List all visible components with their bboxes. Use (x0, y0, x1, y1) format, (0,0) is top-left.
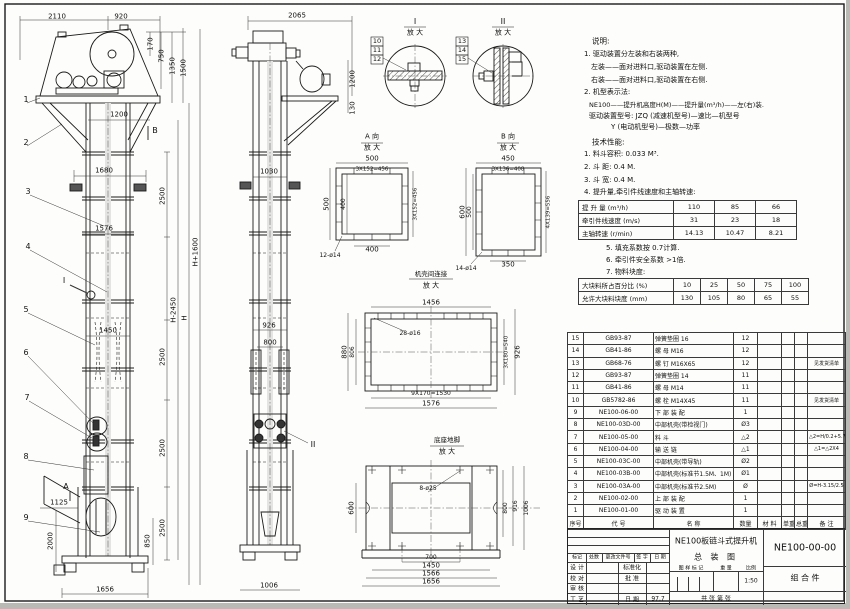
bom-cell: NE100-01-00 (584, 505, 654, 517)
drawing-sheet: { "notes": { "heading": "说明:", "lines": … (0, 0, 850, 609)
bom-cell: NE100-04-00 (584, 443, 654, 455)
tb-label-date2: 日 期 (625, 595, 639, 604)
note-line: 左装——面对进料口,驱动装置在左侧. (591, 62, 707, 72)
dim-label: 800 (263, 340, 276, 347)
capacity-cell: 23 (715, 214, 756, 227)
dim-label: 9X170=1530 (411, 391, 451, 397)
dim-label: 2500 (160, 519, 167, 537)
note-line: 驱动装置型号: JZQ (减速机型号)—速比—机型号 (589, 111, 740, 121)
bom-cell (782, 394, 795, 406)
dim-label: 3X180=540 (504, 336, 510, 369)
capacity-cell: 85 (715, 201, 756, 214)
bom-cell: △2=H/0.2+5.75 (808, 431, 846, 443)
tb-label-review: 审 核 (570, 584, 584, 593)
bom-cell (782, 455, 795, 467)
tb-kind: 组 合 件 (790, 573, 819, 584)
tb-product-name: NE100板链斗式提升机 (675, 536, 757, 547)
bom-cell: GB41-86 (584, 382, 654, 394)
bom-cell (782, 480, 795, 492)
bom-row: 5NE100-03C-00中部机壳(带导轨)Ø2 (568, 455, 846, 467)
bom-cell (782, 357, 795, 369)
lump-cell: 大块料所占百分比 (%) (579, 279, 674, 292)
bom-cell (758, 369, 782, 381)
bom-cell: 6 (568, 443, 584, 455)
dim-label: II (501, 18, 506, 26)
bom-cell: 螺 母 M14 (654, 382, 734, 394)
tb-label-scale: 比例 (746, 565, 756, 572)
bom-cell (758, 333, 782, 345)
tech-line: 1. 料斗容积: 0.033 M³. (584, 149, 659, 159)
capacity-cell: 提 升 量 (m³/h) (579, 201, 674, 214)
dim-label: 8-ø25 (419, 486, 436, 492)
dim-label: 10 (373, 38, 381, 45)
bom-cell: 弹簧垫圈 16 (654, 333, 734, 345)
lump-cell: 65 (755, 292, 782, 305)
lump-cell: 105 (701, 292, 728, 305)
bom-cell: Ø3 (734, 419, 758, 431)
capacity-cell: 主轴转速 (r/min) (579, 227, 674, 240)
bom-cell (795, 468, 808, 480)
bom-cell: △2 (734, 431, 758, 443)
dim-label: 1450 (422, 563, 440, 570)
bom-cell (758, 480, 782, 492)
tb-label-count: 处数 (589, 554, 599, 561)
capacity-cell: 31 (674, 214, 715, 227)
capacity-cell: 14.13 (674, 227, 715, 240)
bom-cell: NE100-03C-00 (584, 455, 654, 467)
dim-label: 底座地脚 (434, 437, 460, 444)
dim-label: 3X152=456 (413, 188, 419, 221)
bom-cell: NE100-05-00 (584, 431, 654, 443)
tb-scale-value: 1:50 (744, 578, 757, 585)
dim-label: 2065 (288, 13, 306, 20)
bom-cell (758, 505, 782, 517)
bom-cell: NE100-03B-00 (584, 468, 654, 480)
tb-label-std: 标准化 (623, 563, 641, 572)
note-line: 右装——面对进料口,驱动装置在右侧. (591, 75, 707, 85)
dim-label: 2500 (160, 187, 167, 205)
dim-label: 920 (114, 14, 127, 21)
bom-cell: △1=△2X4 (808, 443, 846, 455)
dim-label: 750 (159, 49, 166, 62)
dim-label: 3X152=456 (356, 167, 389, 173)
bom-cell: 14 (568, 345, 584, 357)
dim-label: 1656 (422, 579, 440, 586)
detail-view-I (371, 27, 447, 108)
dim-label: 926 (262, 323, 275, 330)
dim-label: 400 (341, 198, 347, 209)
bom-cell: NE100-06-00 (584, 406, 654, 418)
bom-cell (782, 419, 795, 431)
bom-cell: 输 送 链 (654, 443, 734, 455)
bom-cell: 13 (568, 357, 584, 369)
dim-label: 700 (425, 555, 436, 561)
tb-date-value: 97.7 (651, 596, 664, 603)
bom-cell (808, 455, 846, 467)
tb-sheets: 共 张 第 张 (701, 594, 731, 603)
lump-size-table: 大块料所占百分比 (%)10255075100允许大块料块度 (mm)13010… (578, 278, 809, 305)
bom-cell (808, 345, 846, 357)
dim-label: 11 (373, 47, 381, 54)
bom-row: 3NE100-03A-00中部机壳(标准节2.5M)ØØ=H-3.15/2.5 (568, 480, 846, 492)
dim-label: I (414, 18, 416, 26)
tb-label-doc: 更改文件号 (605, 554, 630, 561)
bom-parts-table: 15GB93-87弹簧垫圈 161214GB41-86螺 母 M161213GB… (567, 332, 846, 530)
dim-label: 放 大 (407, 30, 423, 37)
bom-cell (758, 419, 782, 431)
bom-cell (782, 431, 795, 443)
lump-cell: 75 (755, 279, 782, 292)
bom-row: 6NE100-04-00输 送 链△1△1=△2X4 (568, 443, 846, 455)
dim-label: H-2450 (171, 297, 178, 323)
capacity-row: 提 升 量 (m³/h)1108566 (579, 201, 797, 214)
tb-label-approve: 批 准 (625, 574, 639, 583)
bom-cell: NE100-02-00 (584, 492, 654, 504)
lump-cell: 25 (701, 279, 728, 292)
bom-cell (782, 406, 795, 418)
dim-label: 12 (373, 56, 381, 63)
note-line: 1. 驱动装置分左装和右装两种, (584, 49, 679, 59)
casing-joint-view (358, 279, 504, 398)
bom-cell (758, 394, 782, 406)
dim-label: 500 (365, 156, 378, 163)
capacity-cell: 10.47 (715, 227, 756, 240)
dim-label: 3 (25, 188, 30, 196)
bom-cell: 料 斗 (654, 431, 734, 443)
bom-cell (795, 369, 808, 381)
capacity-cell: 8.21 (756, 227, 797, 240)
bom-cell (808, 492, 846, 504)
tb-label-craft: 工 艺 (570, 595, 584, 604)
dim-label: 806 (350, 346, 356, 357)
dim-label: II (311, 441, 316, 449)
bom-cell: 11 (734, 394, 758, 406)
bom-cell (795, 480, 808, 492)
tech-line: 4. 提升量,牵引件线速度和主轴转速: (584, 187, 696, 197)
bom-cell (795, 345, 808, 357)
bom-cell: 下 部 装 配 (654, 406, 734, 418)
dim-label: 1456 (422, 300, 440, 307)
dim-label: 机壳间连接 (415, 271, 448, 278)
bom-row: 14GB41-86螺 母 M1612 (568, 345, 846, 357)
dim-label: 放 大 (423, 283, 439, 290)
dim-label: 2110 (48, 14, 66, 21)
bom-cell (795, 443, 808, 455)
dim-label: 1576 (95, 226, 113, 233)
bom-cell: NE100-03A-00 (584, 480, 654, 492)
capacity-cell: 66 (756, 201, 797, 214)
lump-cell: 80 (728, 292, 755, 305)
tech-note: 7. 物料块度: (606, 267, 645, 277)
side-elevation-view (232, 31, 338, 560)
bom-cell: GB93-87 (584, 369, 654, 381)
dim-label: 400 (365, 247, 378, 254)
bom-cell: Ø (734, 480, 758, 492)
detail-view-II (456, 27, 533, 108)
dim-label: A (63, 483, 68, 491)
dim-label: 450 (501, 156, 514, 163)
bom-cell (808, 419, 846, 431)
bom-cell (795, 419, 808, 431)
note-line: NE100——提升机高度H(M)——提升量(m³/h)——左(右)装. (589, 99, 764, 109)
bom-cell (782, 345, 795, 357)
bom-cell: 3 (568, 480, 584, 492)
tb-label-check: 校 对 (570, 574, 584, 583)
bom-cell (808, 333, 846, 345)
dim-label: 放 大 (495, 30, 511, 37)
bom-cell (795, 431, 808, 443)
bom-row: 1NE100-01-00驱 动 装 置1 (568, 505, 846, 517)
bom-cell: 4 (568, 468, 584, 480)
tb-label-mark: 标记 (572, 554, 582, 561)
dim-label: 170 (148, 37, 155, 50)
dim-label: 1030 (260, 169, 278, 176)
bom-cell (808, 468, 846, 480)
dim-label: 8 (23, 453, 28, 461)
bom-cell: 螺 栓 M14X45 (654, 394, 734, 406)
bom-cell: 8 (568, 419, 584, 431)
bom-cell (808, 406, 846, 418)
bom-row: 10GB5782-86螺 栓 M14X4511见发货清单 (568, 394, 846, 406)
bom-cell: 中部机壳(标准节1.5M、1M) (654, 468, 734, 480)
dim-label: 130 (350, 101, 357, 114)
dim-label: 放 大 (439, 449, 455, 456)
lump-cell: 10 (674, 279, 701, 292)
bom-cell: 11 (734, 382, 758, 394)
bom-cell: 中部机壳(带检视门) (654, 419, 734, 431)
dim-label: A 向 (365, 134, 379, 141)
tech-note: 6. 牵引件安全系数 >1倍. (606, 255, 686, 265)
bom-row: 13GB68-76螺 钉 M16X6512见发货清单 (568, 357, 846, 369)
dim-label: 926 (515, 345, 522, 358)
bom-row: 7NE100-05-00料 斗△2△2=H/0.2+5.75 (568, 431, 846, 443)
bom-cell: △1 (734, 443, 758, 455)
dim-label: B (152, 127, 158, 135)
bom-cell: 中部机壳(带导轨) (654, 455, 734, 467)
dim-label: 2500 (160, 348, 167, 366)
bom-cell (795, 406, 808, 418)
bom-cell (808, 505, 846, 517)
bom-cell: 9 (568, 406, 584, 418)
bom-row: 2NE100-02-00上 部 装 配1 (568, 492, 846, 504)
bom-cell: GB93-87 (584, 333, 654, 345)
bom-cell: 螺 钉 M16X65 (654, 357, 734, 369)
tb-label-stamp: 图 样 标 记 (679, 565, 704, 572)
bom-cell: 12 (734, 333, 758, 345)
bom-cell: 2 (568, 492, 584, 504)
dim-label: 1656 (96, 587, 114, 594)
bom-cell: 5 (568, 455, 584, 467)
bom-cell: Ø2 (734, 455, 758, 467)
bom-cell: 见发货清单 (808, 394, 846, 406)
bom-cell (795, 492, 808, 504)
bom-cell (782, 333, 795, 345)
bom-cell (795, 382, 808, 394)
tb-label-date: 日 期 (654, 554, 666, 561)
bom-cell: 中部机壳(标准节2.5M) (654, 480, 734, 492)
bom-cell: 15 (568, 333, 584, 345)
lump-cell: 100 (782, 279, 809, 292)
dim-label: 28-ø16 (399, 331, 420, 337)
bom-cell: 1 (734, 406, 758, 418)
dim-label: 2000 (48, 532, 55, 550)
note-line: Y (电动机型号)—极数—功率 (611, 122, 700, 132)
dim-label: I (63, 277, 65, 285)
bom-cell (808, 382, 846, 394)
bom-cell: GB5782-86 (584, 394, 654, 406)
lump-cell: 130 (674, 292, 701, 305)
base-anchor-view (346, 446, 540, 562)
dim-label: H (182, 315, 189, 320)
dim-label: 1200 (350, 70, 357, 88)
dim-label: 1006 (260, 583, 278, 590)
dim-label: 4X139=556 (546, 196, 552, 229)
bom-cell (758, 492, 782, 504)
capacity-cell: 牵引件线速度 (m/s) (579, 214, 674, 227)
capacity-cell: 18 (756, 214, 797, 227)
dim-label: 放 大 (364, 145, 380, 152)
bom-cell (758, 455, 782, 467)
bom-row: 11GB41-86螺 母 M1411 (568, 382, 846, 394)
dim-label: 7 (24, 394, 29, 402)
bom-row: 4NE100-03B-00中部机壳(标准节1.5M、1M)Ø1 (568, 468, 846, 480)
dim-label: 1200 (110, 112, 128, 119)
bom-cell: 1 (568, 505, 584, 517)
dim-label: 13 (458, 38, 466, 45)
dim-label: 1500 (181, 59, 188, 77)
capacity-row: 牵引件线速度 (m/s)312318 (579, 214, 797, 227)
dim-label: 1 (23, 96, 28, 104)
lump-cell: 55 (782, 292, 809, 305)
bom-cell: GB41-86 (584, 345, 654, 357)
dim-label: 3X136=408 (492, 167, 525, 173)
dim-label: 12-ø14 (319, 253, 340, 259)
dim-label: 1680 (95, 168, 113, 175)
bom-cell (782, 382, 795, 394)
tb-label-weight: 重 量 (720, 565, 732, 572)
dim-label: 350 (501, 262, 514, 269)
note-line: 2. 机型表示法: (584, 87, 630, 97)
capacity-row: 主轴转速 (r/min)14.1310.478.21 (579, 227, 797, 240)
bom-cell: 12 (568, 369, 584, 381)
dim-label: 14 (458, 47, 466, 54)
dim-label: 9 (23, 514, 28, 522)
bom-cell (758, 406, 782, 418)
tb-sheet-name: 总 装 图 (694, 552, 738, 563)
bom-cell (758, 468, 782, 480)
notes-heading: 说明: (592, 36, 610, 47)
tech-note: 5. 填充系数按 0.7计算. (606, 243, 680, 253)
bom-cell (782, 492, 795, 504)
bom-cell (795, 357, 808, 369)
dim-label: 916 (513, 500, 519, 511)
lump-row: 大块料所占百分比 (%)10255075100 (579, 279, 809, 292)
bom-cell: GB68-76 (584, 357, 654, 369)
bom-cell (782, 369, 795, 381)
bom-cell (808, 369, 846, 381)
bom-cell: 螺 母 M16 (654, 345, 734, 357)
bom-cell (758, 431, 782, 443)
bom-cell: 1 (734, 492, 758, 504)
dim-label: 15 (458, 56, 466, 63)
dim-label: 880 (342, 345, 349, 358)
title-block: 标记 处数 更改文件号 签 字 日 期 设 计 校 对 审 核 工 艺 标准化 … (567, 528, 845, 604)
dim-label: 1450 (99, 328, 117, 335)
dim-label: 800 (503, 502, 509, 513)
dim-label: 500 (324, 197, 331, 210)
dim-label: 1350 (170, 57, 177, 75)
dim-label: 850 (145, 534, 152, 547)
bom-cell (782, 505, 795, 517)
dim-label: B 向 (501, 134, 515, 141)
bom-cell (795, 394, 808, 406)
dim-label: 1566 (422, 571, 440, 578)
bom-cell (758, 443, 782, 455)
lump-cell: 允许大块料块度 (mm) (579, 292, 674, 305)
dim-label: H+1600 (193, 238, 200, 267)
tb-drawing-code: NE100-00-00 (774, 543, 836, 554)
bom-row: 9NE100-06-00下 部 装 配1 (568, 406, 846, 418)
tb-label-design: 设 计 (570, 563, 584, 572)
bom-cell: 上 部 装 配 (654, 492, 734, 504)
lump-row: 允许大块料块度 (mm)130105806555 (579, 292, 809, 305)
lump-cell: 50 (728, 279, 755, 292)
bom-row: 8NE100-03D-00中部机壳(带检视门)Ø3 (568, 419, 846, 431)
capacity-cell: 110 (674, 201, 715, 214)
capacity-table: 提 升 量 (m³/h)1108566牵引件线速度 (m/s)312318主轴转… (578, 200, 797, 240)
dim-label: 1576 (422, 401, 440, 408)
tech-heading: 技术性能: (592, 137, 625, 148)
dim-label: 600 (349, 501, 356, 514)
bom-cell (758, 382, 782, 394)
bom-cell: Ø1 (734, 468, 758, 480)
dim-label: 1125 (50, 500, 68, 507)
bom-cell: 见发货清单 (808, 357, 846, 369)
bom-cell: 7 (568, 431, 584, 443)
bom-cell: 弹簧垫圈 14 (654, 369, 734, 381)
dim-label: 6 (23, 349, 28, 357)
bom-cell: 11 (734, 369, 758, 381)
bom-cell (782, 468, 795, 480)
tb-label-sign: 签 字 (636, 554, 648, 561)
bom-cell (758, 357, 782, 369)
bom-cell (795, 505, 808, 517)
bom-cell: 10 (568, 394, 584, 406)
bom-cell (795, 455, 808, 467)
front-elevation-view (36, 25, 160, 575)
bom-cell: NE100-03D-00 (584, 419, 654, 431)
bom-cell (795, 333, 808, 345)
dim-label: 5 (23, 306, 28, 314)
dim-label: 2500 (160, 439, 167, 457)
bom-cell: 1 (734, 505, 758, 517)
bom-cell: 12 (734, 345, 758, 357)
bom-cell: 11 (568, 382, 584, 394)
dim-label: 500 (467, 206, 473, 217)
dim-label: 1006 (524, 500, 530, 515)
dim-label: 2 (23, 139, 28, 147)
bom-row: 15GB93-87弹簧垫圈 1612 (568, 333, 846, 345)
dim-label: 4 (25, 243, 30, 251)
tech-line: 3. 斗 宽: 0.4 M. (584, 175, 635, 185)
dim-label: 放 大 (500, 145, 516, 152)
bom-cell: 12 (734, 357, 758, 369)
bom-row: 12GB93-87弹簧垫圈 1411 (568, 369, 846, 381)
dim-label: 14-ø14 (455, 266, 476, 272)
bom-cell: 驱 动 装 置 (654, 505, 734, 517)
tech-line: 2. 斗 距: 0.4 M. (584, 162, 635, 172)
bom-cell (782, 443, 795, 455)
